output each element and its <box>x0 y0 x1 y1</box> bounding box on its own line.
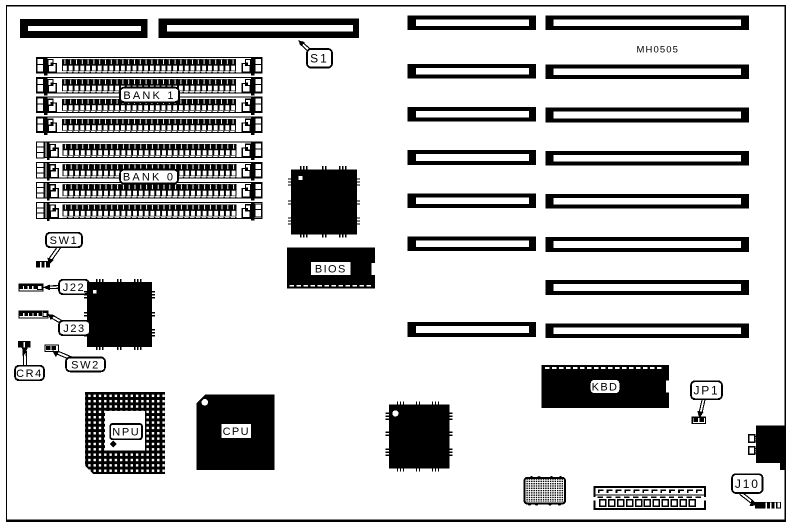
svg-text:NPU: NPU <box>112 427 140 439</box>
svg-text:J10: J10 <box>735 477 760 491</box>
svg-text:KBD: KBD <box>592 382 619 394</box>
svg-text:CR4: CR4 <box>16 368 43 380</box>
svg-text:JP1: JP1 <box>693 384 719 398</box>
svg-text:SW1: SW1 <box>50 235 79 247</box>
svg-text:BANK 1: BANK 1 <box>123 90 175 102</box>
svg-text:BIOS: BIOS <box>315 264 347 276</box>
svg-text:SW2: SW2 <box>71 359 100 371</box>
svg-text:J22: J22 <box>63 282 86 294</box>
svg-text:S1: S1 <box>310 52 329 66</box>
svg-text:J23: J23 <box>63 323 86 335</box>
svg-text:MH0505: MH0505 <box>637 44 680 55</box>
svg-text:BANK 0: BANK 0 <box>123 172 175 184</box>
svg-text:CPU: CPU <box>223 426 250 438</box>
